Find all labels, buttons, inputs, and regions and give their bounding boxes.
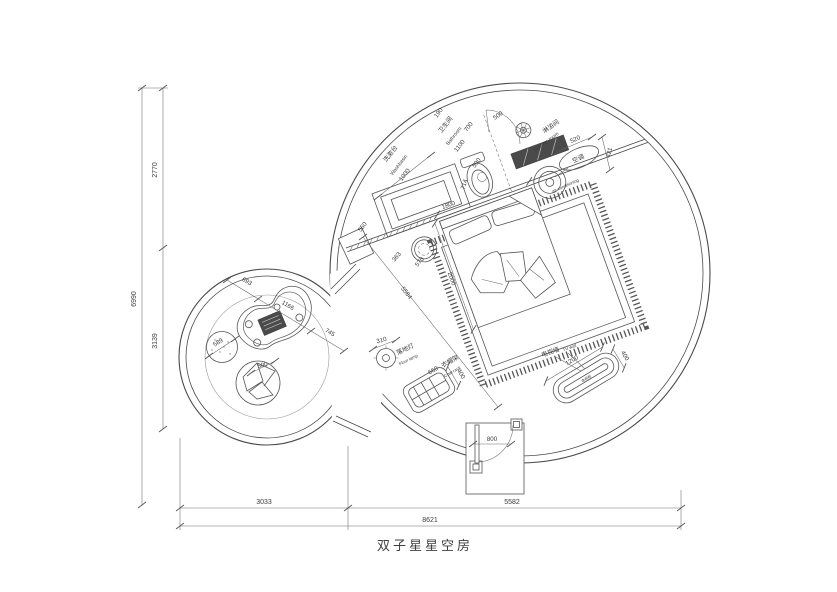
dim-700: 700 [463, 120, 475, 133]
table-stool-1 [244, 319, 254, 329]
dim-bed-width: 1800 [441, 200, 457, 211]
shower-label-cn: 淋浴间 [541, 118, 561, 135]
floor-plan-canvas: 1800 2000 电视柜 1200 400 电视墙 TV wall 400 6… [0, 0, 837, 592]
dim-3033: 3033 [256, 499, 272, 506]
floor-drain-icon [514, 121, 533, 140]
dim-tv-depth: 400 [619, 350, 631, 363]
dim-coat-width: 660 [427, 365, 440, 377]
dim-590: 590 [471, 156, 483, 169]
coat-rack-label-group: 660 衣帽架 Coat rack [427, 353, 462, 378]
dimension-system: 2770 3139 6990 3033 5582 8621 [131, 85, 685, 530]
bed [440, 188, 571, 328]
dim-8621: 8621 [422, 517, 438, 524]
dim-stool-b: 570 [414, 255, 426, 268]
dim-door: 800 [487, 436, 498, 443]
pouf: 589 [205, 332, 239, 363]
washbasin-label-cn: 洗漱台 [382, 144, 400, 164]
shower-screen-line [484, 115, 512, 192]
tv-cabinet-label: 电视柜 [580, 373, 592, 383]
dim-2770: 2770 [152, 162, 159, 178]
building-walls [179, 83, 710, 463]
dim-714: 714 [460, 178, 470, 191]
dim-1166: 1166 [280, 299, 295, 312]
shower-bench [511, 135, 569, 169]
dim-590-marker [478, 173, 487, 182]
dim-bathroom-width: 1100 [453, 138, 467, 153]
dim-bath-door: 500 [492, 110, 505, 122]
laptop [258, 311, 287, 336]
dim-beanbag: 500 [257, 361, 269, 370]
tv-wall-label-group: 电视墙 TV wall [540, 343, 585, 371]
ac-label-cn: 空调 [571, 153, 586, 165]
dim-diagonal: 5584 [399, 285, 413, 301]
dim-bench: 520 [569, 134, 582, 145]
dim-6990: 6990 [131, 291, 138, 307]
small-circle-outer-wall [179, 269, 355, 445]
floor-plan-drawing: 1800 2000 电视柜 1200 400 电视墙 TV wall 400 6… [0, 0, 837, 592]
dim-5582: 5582 [504, 499, 520, 506]
dim-stool-a: 363 [391, 250, 403, 263]
dim-190: 190 [433, 106, 445, 119]
dim-washbasin-depth: 550 [357, 220, 369, 233]
tv-cabinet: 电视柜 1200 400 [539, 331, 635, 410]
drawing-title: 双子星星空房 [377, 538, 473, 553]
entrance-vestibule: 800 [466, 419, 524, 494]
dim-3139: 3139 [152, 333, 159, 349]
dim-421: 421 [605, 146, 614, 158]
beanbag: 500 [236, 358, 280, 405]
table-stool-2 [252, 338, 262, 348]
